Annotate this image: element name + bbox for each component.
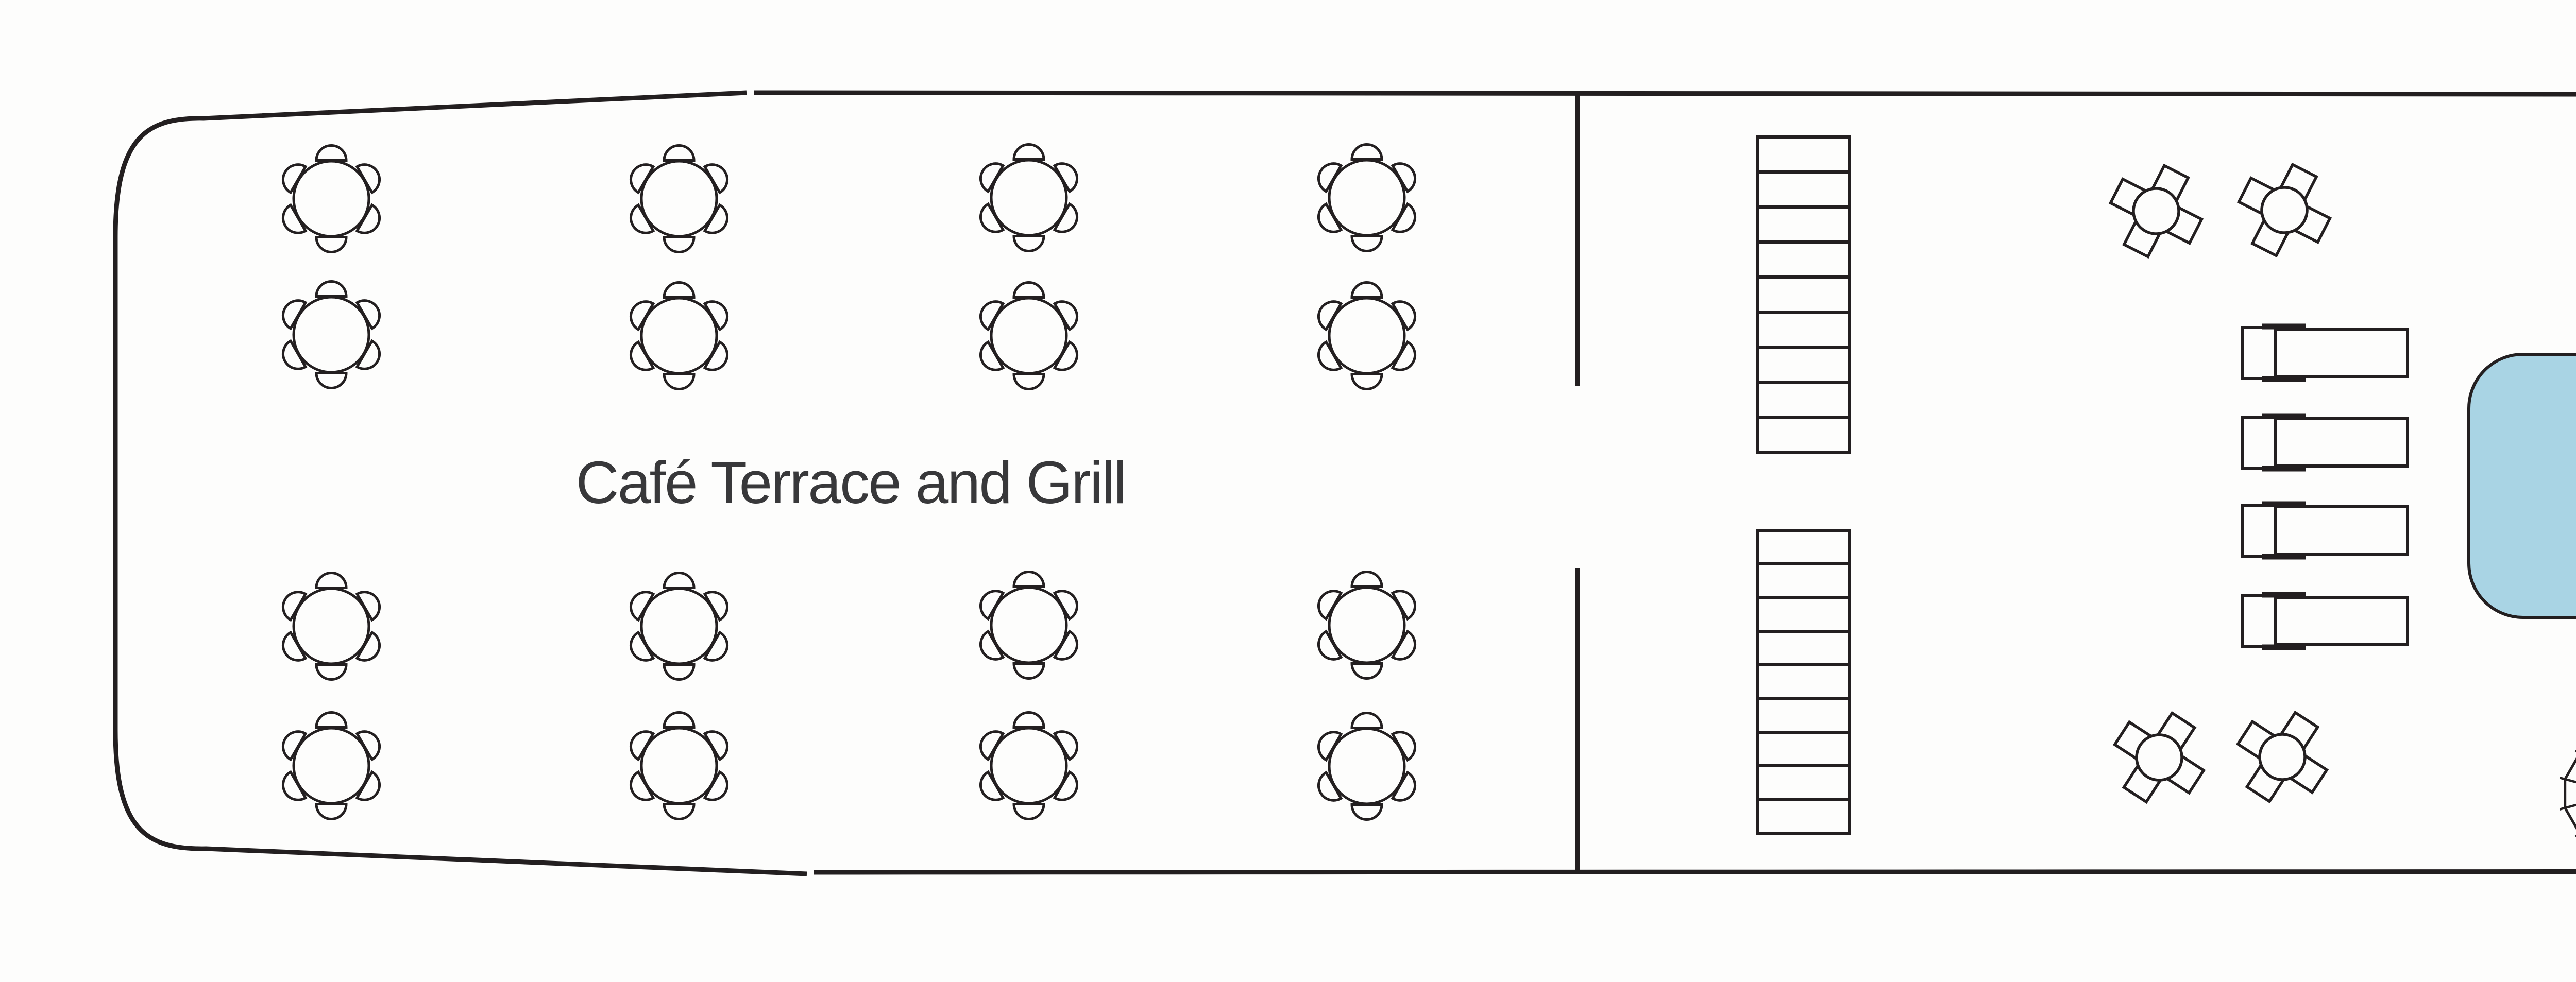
svg-text:Café Terrace and Grill: Café Terrace and Grill (576, 449, 1126, 516)
